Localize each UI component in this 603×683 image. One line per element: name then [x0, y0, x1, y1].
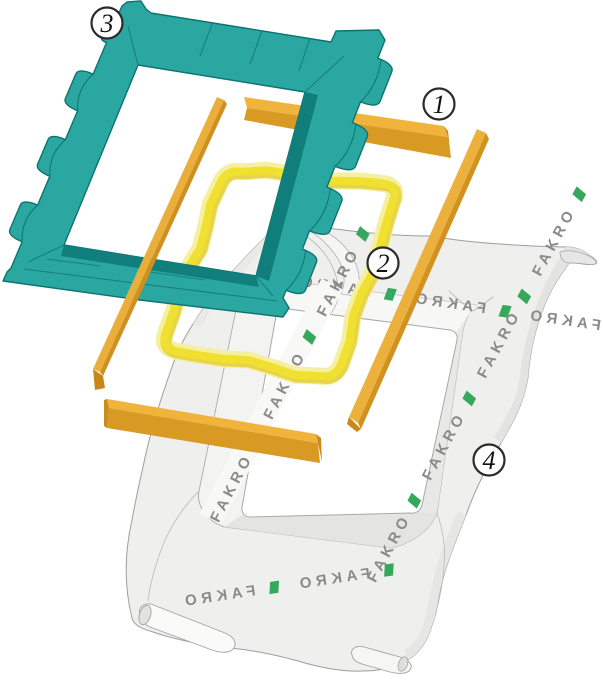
svg-text:3: 3 [100, 9, 114, 38]
svg-text:1: 1 [433, 90, 446, 119]
svg-text:2: 2 [377, 249, 390, 278]
svg-text:4: 4 [483, 446, 496, 475]
